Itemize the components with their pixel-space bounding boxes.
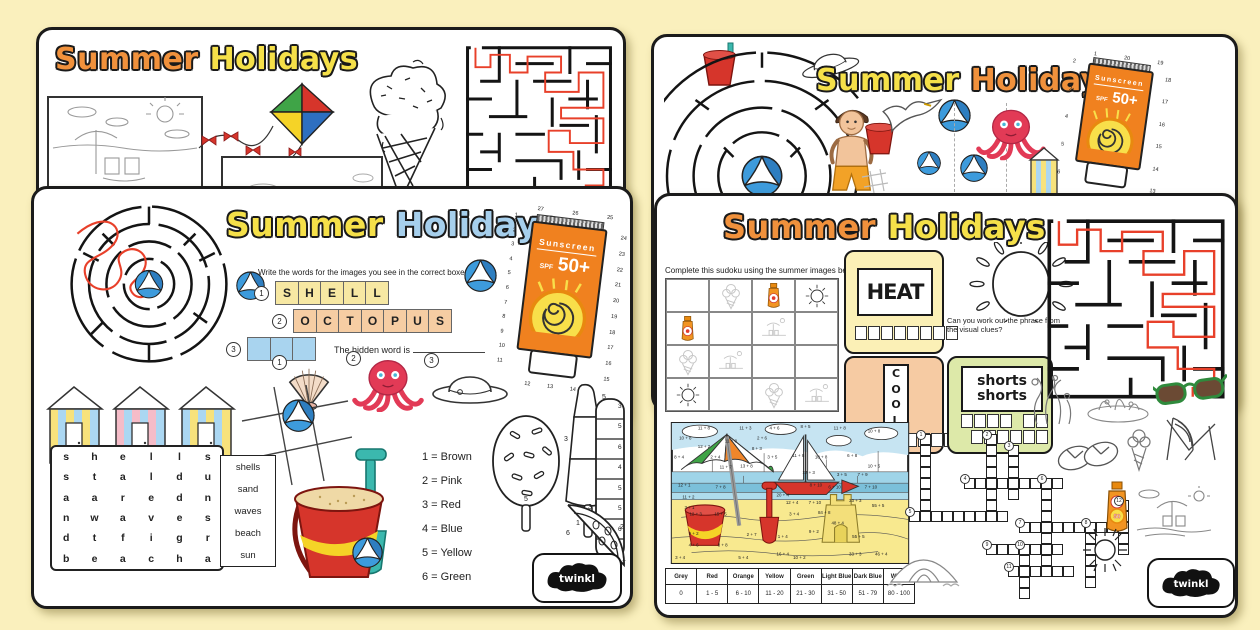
dot-numbers-right: 24232221201918171615 <box>603 235 627 383</box>
svg-text:3 + 5: 3 + 5 <box>837 472 848 477</box>
dashed-cut-guide <box>954 103 955 197</box>
heat-word: HEAT <box>857 268 933 316</box>
svg-text:10 + 2: 10 + 2 <box>793 555 806 560</box>
svg-text:2 + 7: 2 + 7 <box>747 532 758 537</box>
twinkl-logo-text: twinkl <box>1174 579 1209 590</box>
svg-text:11 + 8: 11 + 8 <box>725 439 738 444</box>
svg-text:15 + 5: 15 + 5 <box>714 511 727 516</box>
colour-by-number-scene: 11 + 811 + 34 + 68 + 511 + 810 + 810 + 8… <box>665 422 915 564</box>
svg-text:10 + 8: 10 + 8 <box>815 454 828 459</box>
svg-text:11 + 8: 11 + 8 <box>792 453 805 458</box>
spf-value: 50+ <box>1111 89 1139 109</box>
beach-ball <box>352 537 383 568</box>
deck-chair-lineart <box>1159 416 1219 462</box>
sudoku-instruction: Complete this sudoku using the summer im… <box>665 266 865 275</box>
svg-text:8 + 3: 8 + 3 <box>752 446 763 451</box>
svg-text:3 + 4: 3 + 4 <box>675 555 686 560</box>
seaweed-lineart <box>1023 374 1079 426</box>
worksheet-page-right-front: Summer Holidays Complete this sudoku usi… <box>654 193 1238 618</box>
svg-text:11 + 8: 11 + 8 <box>698 425 711 430</box>
melon-number: 1 <box>622 556 626 563</box>
sudoku-cell-empty <box>795 345 838 378</box>
sunglasses <box>1153 372 1227 412</box>
svg-text:48 + 4: 48 + 4 <box>831 521 844 526</box>
tent-lineart <box>885 538 963 588</box>
icecream-faint-icon <box>757 381 791 409</box>
puzzle-instruction: Write the words for the images you see i… <box>258 268 498 277</box>
svg-text:8 + 5: 8 + 5 <box>801 424 812 429</box>
crossword-clue-number: 2 <box>982 430 992 440</box>
crossword-clue-number: 1 <box>916 430 926 440</box>
sudoku-cell-empty <box>709 312 752 345</box>
sun-icon <box>800 282 834 310</box>
dot-numbers-right: 181716151413 <box>1149 77 1171 195</box>
icecream-faint-icon <box>714 282 748 310</box>
svg-text:20 + 4: 20 + 4 <box>777 493 790 498</box>
svg-text:55 + 5: 55 + 5 <box>872 503 885 508</box>
twinkl-logo: twinkl <box>544 561 610 595</box>
svg-text:10 + 5: 10 + 5 <box>868 464 881 469</box>
sunscreen-bottle-icon <box>757 282 791 310</box>
lolly-number: 5 <box>524 496 528 503</box>
svg-text:9 + 2: 9 + 2 <box>689 531 700 536</box>
row-number: 3 <box>226 342 241 357</box>
melon-number: 3 <box>588 504 592 511</box>
crossword-clue-number: 10 <box>1015 540 1025 550</box>
lolly-number: 3 <box>564 436 568 443</box>
svg-text:16 + 4: 16 + 4 <box>777 552 790 557</box>
beach-scene-faint-icon <box>757 315 791 343</box>
answer-boxes <box>855 326 958 340</box>
sunscreen-tube: Sunscreen SPF 50+ <box>516 220 607 358</box>
crossword-clue-number: 11 <box>1004 562 1014 572</box>
crossword-clue-number: 5 <box>905 507 915 517</box>
sun-spiral <box>1079 103 1147 155</box>
sudoku-cell-icecream <box>666 345 709 378</box>
worksheet-page-left-front: Summer Holidays Write the words for the … <box>31 186 633 609</box>
svg-text:12 + 3: 12 + 3 <box>689 511 702 516</box>
svg-text:11 + 2: 11 + 2 <box>682 495 695 500</box>
wordsearch-word-list: shellssandwavesbeachsun <box>220 455 276 567</box>
beach-scene-small-lineart <box>1135 486 1211 540</box>
bottle-spf-text: 50 <box>1114 515 1121 521</box>
crossword-clue-number: 4 <box>960 474 970 484</box>
sudoku-cell-beach <box>709 345 752 378</box>
sudoku-cell-empty <box>795 312 838 345</box>
svg-text:11 + 8: 11 + 8 <box>834 425 847 430</box>
sunscreen-dot-to-dot: 272625 1234567891011 2423222120191817161… <box>489 206 639 406</box>
melon-number: 6 <box>566 530 570 537</box>
word-row-octopus: 2 OCTOPUS <box>272 309 451 333</box>
rockpool-lineart <box>1085 380 1151 424</box>
shorts-word-2: shorts <box>977 389 1027 404</box>
icecream-small-lineart <box>1123 428 1155 472</box>
svg-text:4 + 6: 4 + 6 <box>769 425 780 430</box>
svg-text:7 + 10: 7 + 10 <box>809 500 822 505</box>
title-word-holidays: Holidays <box>888 208 1046 246</box>
sudoku-cell-sun <box>666 378 709 411</box>
sun-icon <box>671 381 705 409</box>
svg-text:8 + 4: 8 + 4 <box>674 454 685 459</box>
crossword-clue-number: 6 <box>1037 474 1047 484</box>
crossword-clue-number: 3 <box>1004 441 1014 451</box>
flip-flops-lineart <box>1053 436 1123 478</box>
octopus-image <box>352 357 424 413</box>
svg-text:3 + 5: 3 + 5 <box>767 454 778 459</box>
sudoku-cell-icecream <box>709 279 752 312</box>
letter-cells: SHELL <box>275 281 388 305</box>
svg-text:33 + 3: 33 + 3 <box>849 552 862 557</box>
svg-text:2 + 6: 2 + 6 <box>757 436 768 441</box>
sudoku-cell-empty <box>709 378 752 411</box>
svg-text:12 + 3: 12 + 3 <box>802 470 815 475</box>
word-row-hidden: 3 <box>226 337 315 361</box>
beach-ball <box>282 399 315 432</box>
svg-text:33 + 3: 33 + 3 <box>849 498 862 503</box>
title-word-summer: Summer <box>723 208 876 246</box>
svg-text:7 + 10: 7 + 10 <box>865 484 878 489</box>
title-word-summer: Summer <box>55 42 199 77</box>
svg-text:2 + 4: 2 + 4 <box>710 454 721 459</box>
page-title: Summer Holidays <box>55 42 358 77</box>
colour-key-table: GreyRedOrangeYellowGreenLight BlueDark B… <box>665 568 915 604</box>
svg-text:7 + 8: 7 + 8 <box>716 484 727 489</box>
twinkl-logo-box: twinkl <box>532 553 622 603</box>
sudoku-grid <box>665 278 839 412</box>
svg-text:12 + 4: 12 + 4 <box>786 500 799 505</box>
square-maze <box>463 46 615 196</box>
heat-rebus-box: HEAT <box>844 250 944 354</box>
sudoku-cell-beach <box>795 378 838 411</box>
shorts-word-1: shorts <box>977 374 1027 389</box>
page-title: Summer Holidays <box>723 208 1046 246</box>
crossword-clue-number: 9 <box>982 540 992 550</box>
sun-spiral <box>521 272 600 338</box>
svg-text:3 + 4: 3 + 4 <box>789 511 800 516</box>
title-word-holidays: Holidays <box>210 42 359 77</box>
sudoku-cell-sunscreen <box>752 279 795 312</box>
cool-word-vertical: COOL <box>883 364 909 430</box>
sudoku-cell-empty <box>752 345 795 378</box>
svg-text:10 + 8: 10 + 8 <box>679 436 692 441</box>
letter-cells: OCTOPUS <box>293 309 451 333</box>
beach-scene-faint-icon <box>800 381 834 409</box>
sudoku-cell-icecream <box>752 378 795 411</box>
hidden-word-label: The hidden word is <box>334 345 410 355</box>
icecream-faint-icon <box>671 348 705 376</box>
svg-text:4 + 6: 4 + 6 <box>689 542 700 547</box>
tube-cap <box>528 349 579 379</box>
twinkl-logo-text: twinkl <box>559 573 595 585</box>
circular-maze <box>48 195 250 373</box>
title-word-summer: Summer <box>816 63 960 98</box>
bucket-and-spade <box>280 447 412 585</box>
svg-text:9 + 2: 9 + 2 <box>809 529 820 534</box>
tic-tac-toe-faint <box>860 169 890 195</box>
twinkl-logo: twinkl <box>1159 567 1223 600</box>
svg-text:11 + 3: 11 + 3 <box>739 425 752 430</box>
sudoku-cell-sun <box>795 279 838 312</box>
title-word-summer: Summer <box>226 205 384 244</box>
svg-text:12 + 1: 12 + 1 <box>678 482 691 487</box>
svg-text:6 + 10: 6 + 10 <box>828 484 841 489</box>
crossword-clue-number: 12 <box>1114 496 1124 506</box>
sudoku-cell-sunscreen <box>666 312 709 345</box>
crossword-clue-number: 8 <box>1081 518 1091 528</box>
beach-ball <box>917 151 941 175</box>
svg-text:12 + 2: 12 + 2 <box>698 444 711 449</box>
beach-scene-faint-icon <box>714 348 748 376</box>
svg-text:6 + 8: 6 + 8 <box>847 453 858 458</box>
sudoku-cell-beach <box>752 312 795 345</box>
svg-text:3 + 1: 3 + 1 <box>684 505 695 510</box>
svg-text:55 + 5: 55 + 5 <box>852 534 865 539</box>
row-number: 2 <box>272 314 287 329</box>
wordsearch-grid: shellsstalduaarednnwavesdtfigrbeacha <box>50 445 224 571</box>
spf-text: SPF <box>539 263 553 272</box>
row-number: 1 <box>254 286 269 301</box>
spf-value: 50+ <box>557 254 592 279</box>
answer-line <box>413 342 485 353</box>
melon-number: 2 <box>620 524 624 531</box>
word-row-shell: 1 SHELL <box>254 281 388 305</box>
sunscreen-dot-to-dot: 12019 23456 181716151413 Sunscreen SPF 5… <box>1053 50 1181 204</box>
svg-text:13 + 8: 13 + 8 <box>740 464 753 469</box>
crossword-clue-number: 7 <box>1015 518 1025 528</box>
svg-text:8 + 8: 8 + 8 <box>718 542 729 547</box>
sudoku-cell-empty <box>666 279 709 312</box>
svg-text:84 + 8: 84 + 8 <box>818 510 831 515</box>
sunscreen-bottle-icon <box>671 315 705 343</box>
svg-text:7 + 9: 7 + 9 <box>858 472 869 477</box>
beach-ball <box>464 259 497 292</box>
sun-small-lineart <box>1081 526 1129 574</box>
colour-key: 1 = Brown2 = Pink3 = Red4 = Blue5 = Yell… <box>422 451 472 583</box>
svg-text:10 + 8: 10 + 8 <box>868 428 881 433</box>
svg-text:1 + 4: 1 + 4 <box>778 534 789 539</box>
seagull <box>880 95 944 139</box>
svg-text:5 + 4: 5 + 4 <box>738 555 749 560</box>
sunscreen-tube: Sunscreen SPF 50+ <box>1075 62 1154 170</box>
spf-text: SPF <box>1096 96 1108 104</box>
svg-text:8 + 10: 8 + 10 <box>810 482 823 487</box>
svg-text:11 + 7: 11 + 7 <box>720 465 733 470</box>
twinkl-logo-box: twinkl <box>1147 558 1235 608</box>
tube-cap <box>1084 161 1129 189</box>
